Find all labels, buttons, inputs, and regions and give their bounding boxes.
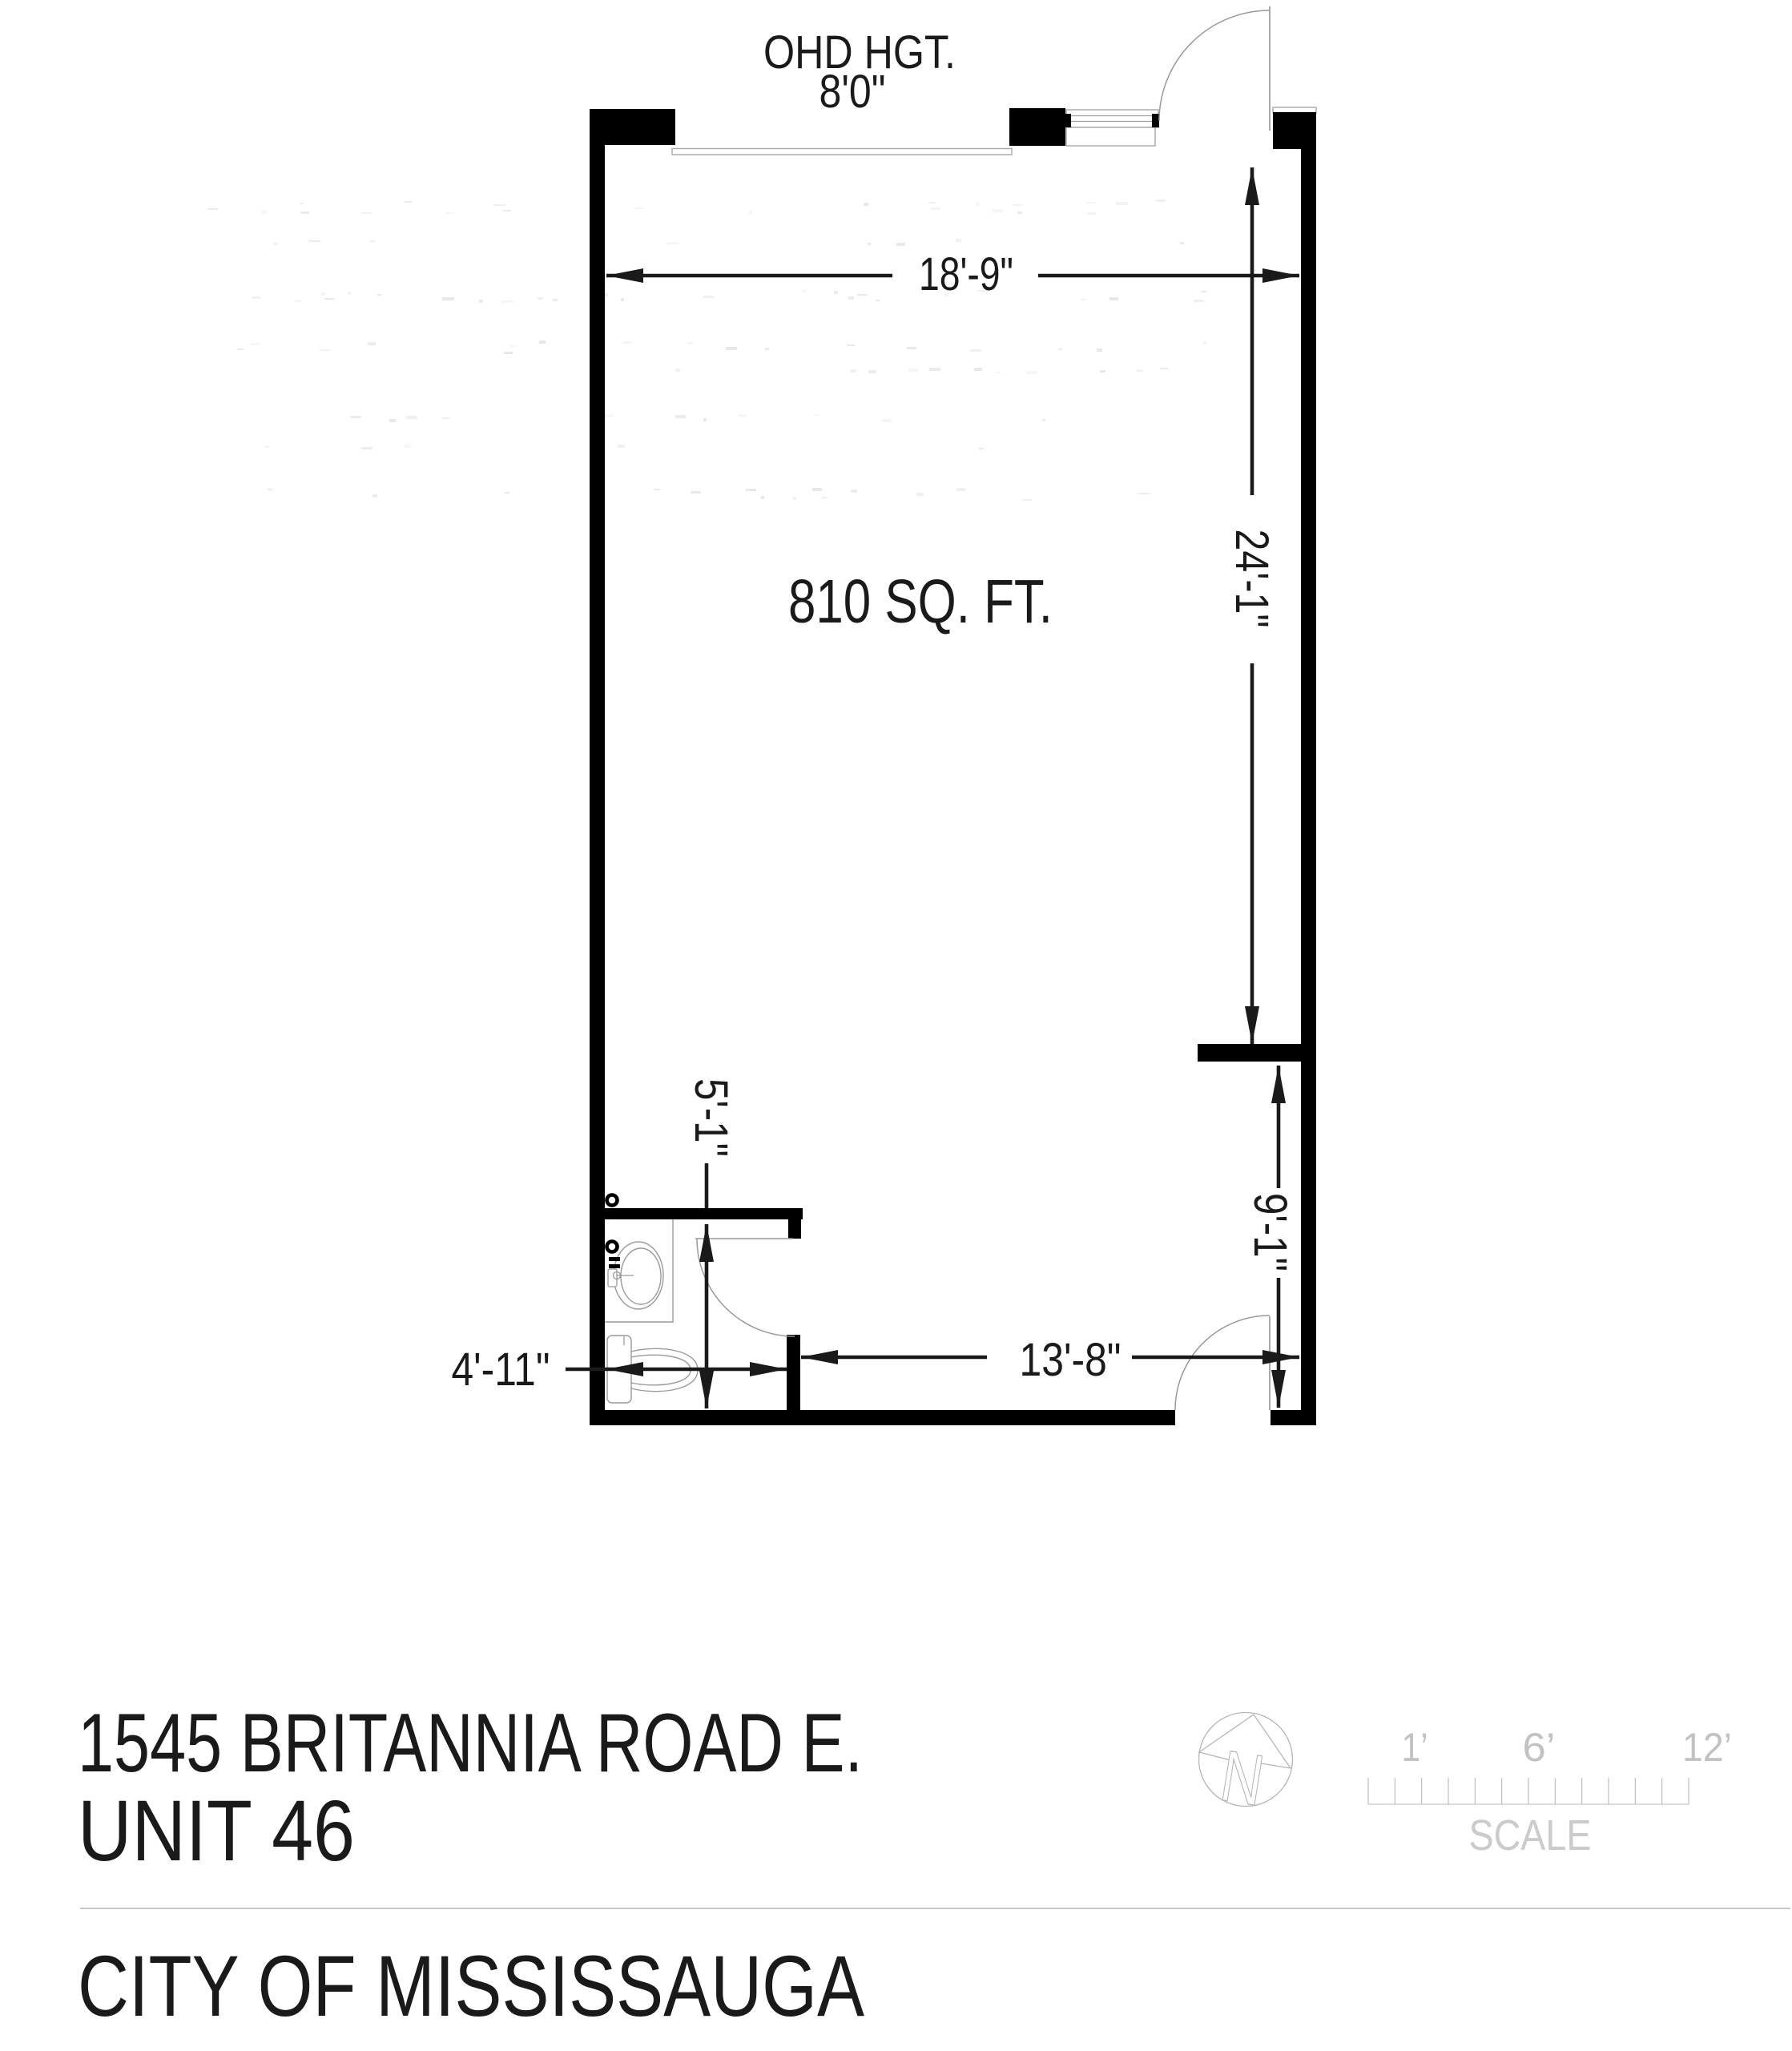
svg-text:9'-1": 9'-1" xyxy=(1244,1193,1296,1271)
svg-text:SCALE: SCALE xyxy=(1469,1811,1592,1860)
svg-text:18'-9": 18'-9" xyxy=(919,248,1013,300)
svg-text:1’: 1’ xyxy=(1402,1725,1428,1770)
svg-text:4'-11": 4'-11" xyxy=(452,1344,550,1396)
svg-text:UNIT 46: UNIT 46 xyxy=(78,1782,355,1879)
svg-text:24'-1": 24'-1" xyxy=(1226,530,1278,628)
svg-text:6’: 6’ xyxy=(1523,1725,1556,1770)
svg-text:810 SQ. FT.: 810 SQ. FT. xyxy=(788,567,1053,636)
svg-text:12’: 12’ xyxy=(1682,1725,1732,1770)
svg-text:13'-8": 13'-8" xyxy=(1020,1334,1122,1386)
svg-text:5'-1": 5'-1" xyxy=(685,1078,737,1157)
svg-text:CITY OF MISSISSAUGA: CITY OF MISSISSAUGA xyxy=(78,1937,864,2034)
svg-text:1545 BRITANNIA ROAD E.: 1545 BRITANNIA ROAD E. xyxy=(78,1697,863,1790)
svg-text:8'0": 8'0" xyxy=(819,66,886,118)
